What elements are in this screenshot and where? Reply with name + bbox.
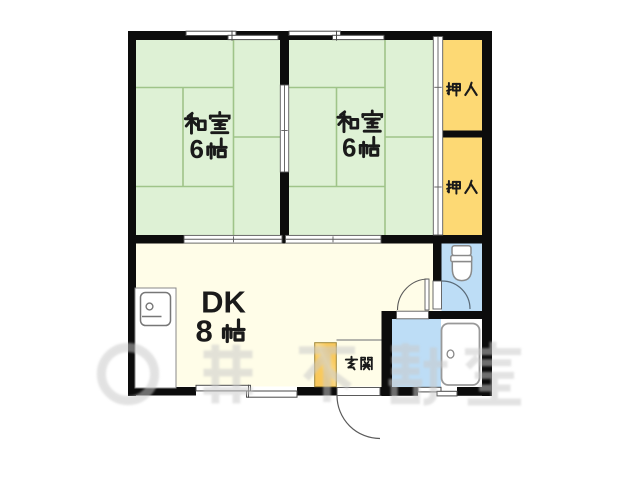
svg-text:6: 6 [342, 133, 356, 163]
svg-text:8: 8 [196, 314, 213, 349]
svg-text:6: 6 [190, 134, 204, 164]
